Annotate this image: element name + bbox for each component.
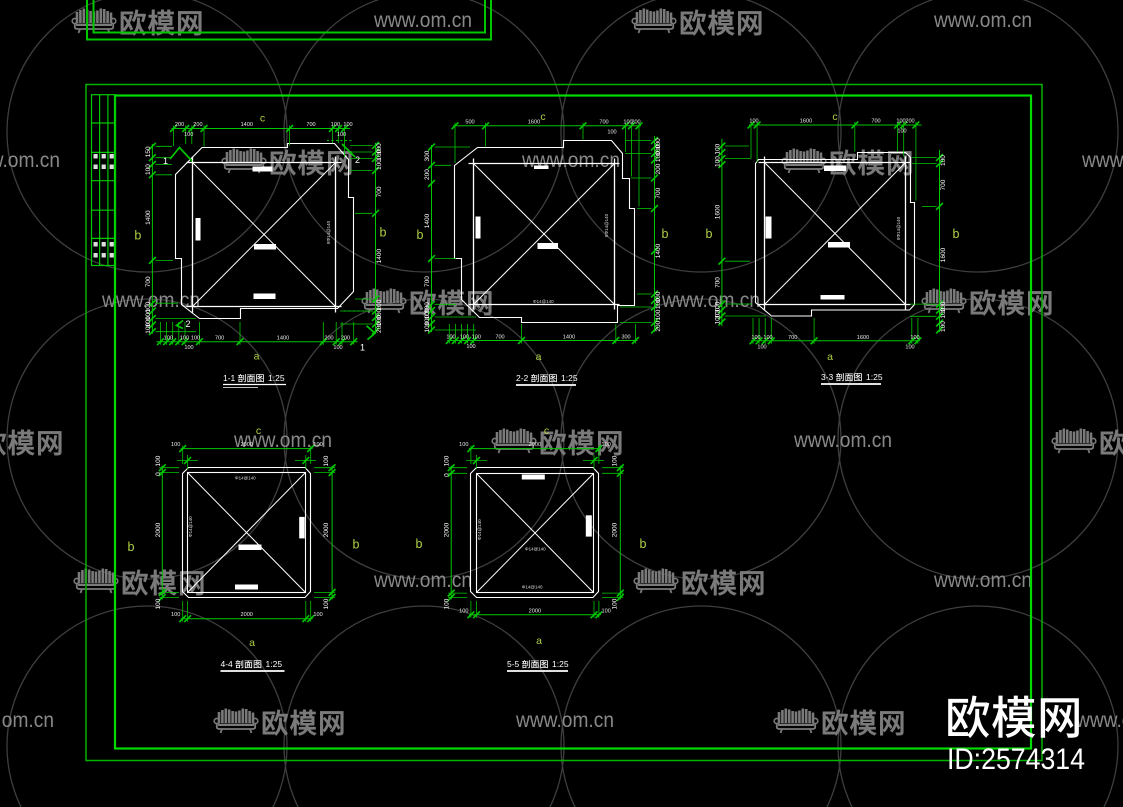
svg-text:200: 200 bbox=[655, 320, 662, 331]
svg-text:100: 100 bbox=[749, 119, 758, 125]
svg-text:100: 100 bbox=[155, 598, 162, 609]
svg-text:2-2: 2-2 bbox=[516, 373, 529, 383]
svg-text:1400: 1400 bbox=[424, 213, 431, 228]
svg-text:100: 100 bbox=[337, 132, 346, 138]
svg-text:1400: 1400 bbox=[277, 336, 289, 342]
svg-text:b: b bbox=[953, 227, 960, 241]
svg-text:2: 2 bbox=[355, 155, 360, 165]
svg-text:100: 100 bbox=[896, 119, 905, 125]
svg-text:8Φ14@140: 8Φ14@140 bbox=[326, 220, 331, 244]
svg-text:100: 100 bbox=[655, 151, 662, 162]
svg-text:200: 200 bbox=[341, 336, 350, 342]
svg-text:c: c bbox=[832, 111, 837, 123]
svg-text:8Φ14@140: 8Φ14@140 bbox=[896, 216, 901, 240]
svg-text:100: 100 bbox=[466, 344, 475, 350]
svg-text:200: 200 bbox=[631, 119, 640, 125]
svg-text:8Φ14@140: 8Φ14@140 bbox=[604, 213, 609, 237]
svg-text:100: 100 bbox=[171, 612, 180, 618]
svg-text:100: 100 bbox=[313, 612, 322, 618]
svg-text:100: 100 bbox=[333, 345, 342, 351]
svg-text:100: 100 bbox=[714, 143, 721, 154]
svg-text:100: 100 bbox=[323, 598, 330, 609]
svg-text:100: 100 bbox=[446, 335, 455, 341]
svg-text:100: 100 bbox=[155, 455, 162, 466]
svg-text:100: 100 bbox=[145, 164, 152, 175]
svg-text:1400: 1400 bbox=[563, 335, 575, 341]
svg-text:100: 100 bbox=[602, 442, 611, 448]
svg-text:1:25: 1:25 bbox=[268, 373, 285, 383]
svg-text:2000: 2000 bbox=[155, 522, 162, 537]
svg-text:100: 100 bbox=[313, 442, 322, 448]
svg-text:1: 1 bbox=[163, 156, 168, 166]
svg-text:1400: 1400 bbox=[241, 122, 253, 128]
svg-text:100: 100 bbox=[655, 298, 662, 309]
svg-text:b: b bbox=[416, 537, 423, 551]
svg-text:200: 200 bbox=[193, 122, 202, 128]
svg-text:100: 100 bbox=[611, 598, 618, 609]
svg-text:1600: 1600 bbox=[857, 335, 869, 341]
svg-text:a: a bbox=[536, 351, 542, 363]
svg-text:150: 150 bbox=[145, 146, 152, 157]
svg-text:1: 1 bbox=[360, 343, 365, 353]
svg-text:100: 100 bbox=[714, 156, 721, 167]
svg-text:1600: 1600 bbox=[714, 204, 721, 219]
svg-text:100: 100 bbox=[444, 598, 451, 609]
svg-text:700: 700 bbox=[940, 179, 947, 190]
svg-text:a: a bbox=[249, 637, 255, 649]
svg-text:100: 100 bbox=[611, 455, 618, 466]
svg-text:100: 100 bbox=[184, 132, 193, 138]
svg-text:100: 100 bbox=[191, 336, 200, 342]
svg-text:100: 100 bbox=[897, 129, 906, 135]
svg-text:1600: 1600 bbox=[940, 247, 947, 262]
svg-text:100: 100 bbox=[331, 122, 340, 128]
svg-text:700: 700 bbox=[599, 119, 608, 125]
svg-text:a: a bbox=[827, 351, 833, 363]
svg-text:100: 100 bbox=[472, 335, 481, 341]
svg-text:1400: 1400 bbox=[655, 243, 662, 258]
svg-text:100: 100 bbox=[607, 129, 616, 135]
svg-text:500: 500 bbox=[465, 119, 474, 125]
svg-text:3-3: 3-3 bbox=[821, 372, 834, 382]
svg-text:b: b bbox=[417, 228, 424, 242]
svg-text:2000: 2000 bbox=[240, 612, 252, 618]
svg-text:1400: 1400 bbox=[376, 248, 383, 263]
svg-text:100: 100 bbox=[376, 299, 383, 310]
svg-text:2: 2 bbox=[186, 319, 191, 329]
svg-text:0: 0 bbox=[444, 473, 451, 477]
svg-text:100: 100 bbox=[602, 608, 611, 614]
svg-text:100: 100 bbox=[444, 455, 451, 466]
svg-text:700: 700 bbox=[655, 187, 662, 198]
svg-text:100: 100 bbox=[376, 159, 383, 170]
svg-text:Φ14@140: Φ14@140 bbox=[533, 299, 554, 304]
svg-text:c: c bbox=[260, 113, 265, 125]
svg-text:b: b bbox=[662, 227, 669, 241]
svg-text:2000: 2000 bbox=[444, 522, 451, 537]
svg-text:100: 100 bbox=[164, 336, 173, 342]
svg-text:Φ14@140: Φ14@140 bbox=[525, 547, 546, 552]
svg-text:100: 100 bbox=[940, 155, 947, 166]
svg-text:700: 700 bbox=[871, 119, 880, 125]
svg-text:c: c bbox=[540, 111, 545, 123]
svg-text:c: c bbox=[544, 425, 549, 437]
svg-text:100: 100 bbox=[323, 455, 330, 466]
svg-text:700: 700 bbox=[306, 122, 315, 128]
svg-text:1:25: 1:25 bbox=[552, 659, 569, 669]
svg-text:100: 100 bbox=[655, 309, 662, 320]
svg-text:200: 200 bbox=[376, 322, 383, 333]
svg-text:700: 700 bbox=[495, 335, 504, 341]
svg-text:2000: 2000 bbox=[240, 442, 252, 448]
svg-text:b: b bbox=[706, 227, 713, 241]
svg-text:1400: 1400 bbox=[145, 210, 152, 225]
svg-text:100: 100 bbox=[460, 335, 469, 341]
svg-text:5-5: 5-5 bbox=[507, 659, 520, 669]
svg-text:1:25: 1:25 bbox=[266, 659, 283, 669]
svg-text:700: 700 bbox=[424, 276, 431, 287]
svg-text:100: 100 bbox=[940, 307, 947, 318]
svg-text:0: 0 bbox=[155, 472, 162, 476]
svg-text:700: 700 bbox=[714, 277, 721, 288]
svg-text:Φ14@140: Φ14@140 bbox=[477, 519, 482, 540]
svg-text:b: b bbox=[128, 540, 135, 554]
svg-text:200: 200 bbox=[324, 336, 333, 342]
svg-text:1600: 1600 bbox=[528, 119, 540, 125]
svg-text:2000: 2000 bbox=[529, 608, 541, 614]
svg-text:b: b bbox=[353, 538, 360, 552]
svg-text:200: 200 bbox=[424, 169, 431, 180]
svg-text:100: 100 bbox=[763, 335, 772, 341]
svg-text:200: 200 bbox=[905, 119, 914, 125]
svg-text:a: a bbox=[254, 351, 260, 363]
svg-text:100: 100 bbox=[145, 322, 152, 333]
svg-text:100: 100 bbox=[184, 345, 193, 351]
svg-text:100: 100 bbox=[424, 321, 431, 332]
svg-text:ID:2574314: ID:2574314 bbox=[947, 743, 1085, 776]
svg-text:a: a bbox=[536, 635, 542, 647]
svg-text:200: 200 bbox=[175, 122, 184, 128]
svg-text:300: 300 bbox=[621, 335, 630, 341]
svg-text:100: 100 bbox=[459, 608, 468, 614]
svg-text:100: 100 bbox=[459, 442, 468, 448]
svg-text:2000: 2000 bbox=[611, 522, 618, 537]
svg-text:Φ14@140: Φ14@140 bbox=[188, 516, 193, 537]
svg-text:b: b bbox=[640, 537, 647, 551]
svg-text:100: 100 bbox=[180, 336, 189, 342]
svg-text:100: 100 bbox=[376, 149, 383, 160]
svg-text:b: b bbox=[380, 226, 387, 240]
svg-text:700: 700 bbox=[215, 336, 224, 342]
svg-text:100: 100 bbox=[910, 335, 919, 341]
svg-text:100: 100 bbox=[714, 313, 721, 324]
svg-text:100: 100 bbox=[757, 344, 766, 350]
svg-text:1:25: 1:25 bbox=[866, 372, 883, 382]
svg-text:200: 200 bbox=[655, 163, 662, 174]
svg-text:100: 100 bbox=[751, 335, 760, 341]
svg-text:100: 100 bbox=[171, 442, 180, 448]
svg-text:100: 100 bbox=[905, 344, 914, 350]
svg-text:100: 100 bbox=[940, 321, 947, 332]
svg-text:1600: 1600 bbox=[800, 119, 812, 125]
svg-text:300: 300 bbox=[424, 150, 431, 161]
svg-text:700: 700 bbox=[788, 335, 797, 341]
svg-text:2000: 2000 bbox=[323, 522, 330, 537]
svg-text:2000: 2000 bbox=[529, 442, 541, 448]
svg-text:1-1: 1-1 bbox=[223, 373, 236, 383]
svg-text:1:25: 1:25 bbox=[561, 373, 578, 383]
svg-text:c: c bbox=[256, 425, 261, 437]
svg-text:700: 700 bbox=[145, 276, 152, 287]
svg-text:700: 700 bbox=[376, 186, 383, 197]
svg-text:100: 100 bbox=[343, 122, 352, 128]
svg-text:Φ14@140: Φ14@140 bbox=[235, 476, 256, 481]
svg-text:Φ14@140: Φ14@140 bbox=[522, 585, 543, 590]
svg-text:4-4: 4-4 bbox=[221, 659, 234, 669]
svg-text:b: b bbox=[134, 229, 141, 243]
